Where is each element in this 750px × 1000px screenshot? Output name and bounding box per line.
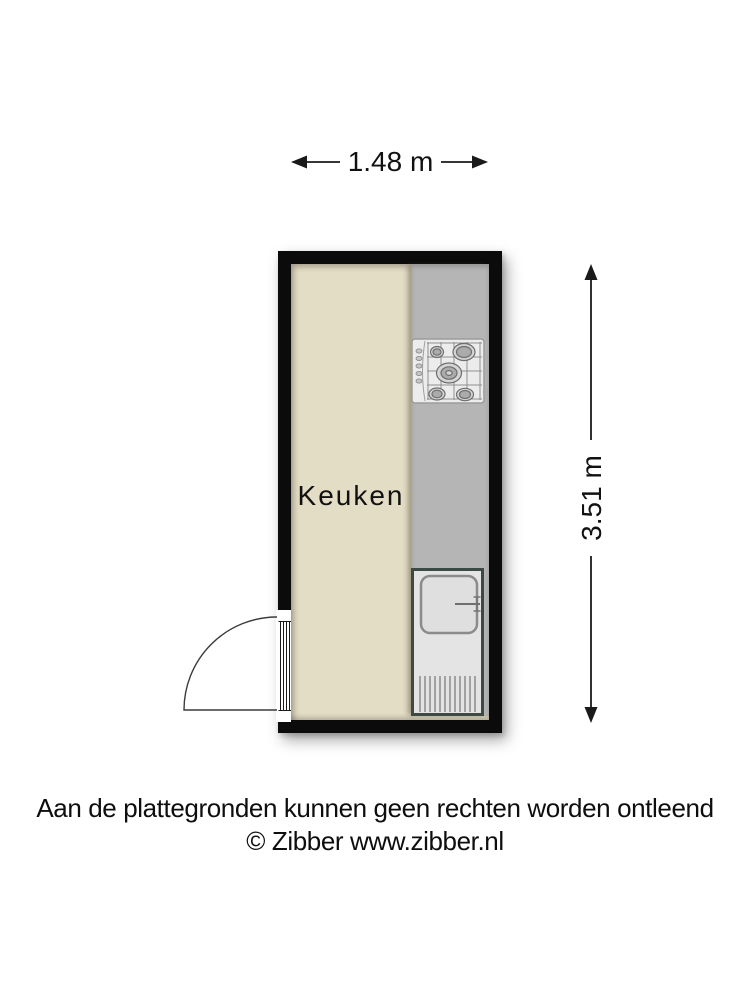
door-swing-icon bbox=[184, 617, 277, 710]
door-opening bbox=[276, 610, 291, 722]
disclaimer-text: Aan de plattegronden kunnen geen rechten… bbox=[0, 792, 750, 825]
kitchen-plan: Keuken bbox=[278, 251, 502, 733]
kitchen-room: Keuken bbox=[291, 264, 489, 720]
sink-icon bbox=[411, 568, 484, 716]
footer: Aan de plattegronden kunnen geen rechten… bbox=[0, 792, 750, 858]
copyright-text: © Zibber www.zibber.nl bbox=[0, 825, 750, 858]
floorplan-page: Keuken 1.48 m bbox=[0, 0, 750, 1000]
width-dimension-label: 1.48 m bbox=[340, 146, 441, 178]
height-dimension-label: 3.51 m bbox=[576, 448, 606, 548]
room-label: Keuken bbox=[291, 480, 411, 512]
gas-hob-icon bbox=[411, 338, 485, 404]
